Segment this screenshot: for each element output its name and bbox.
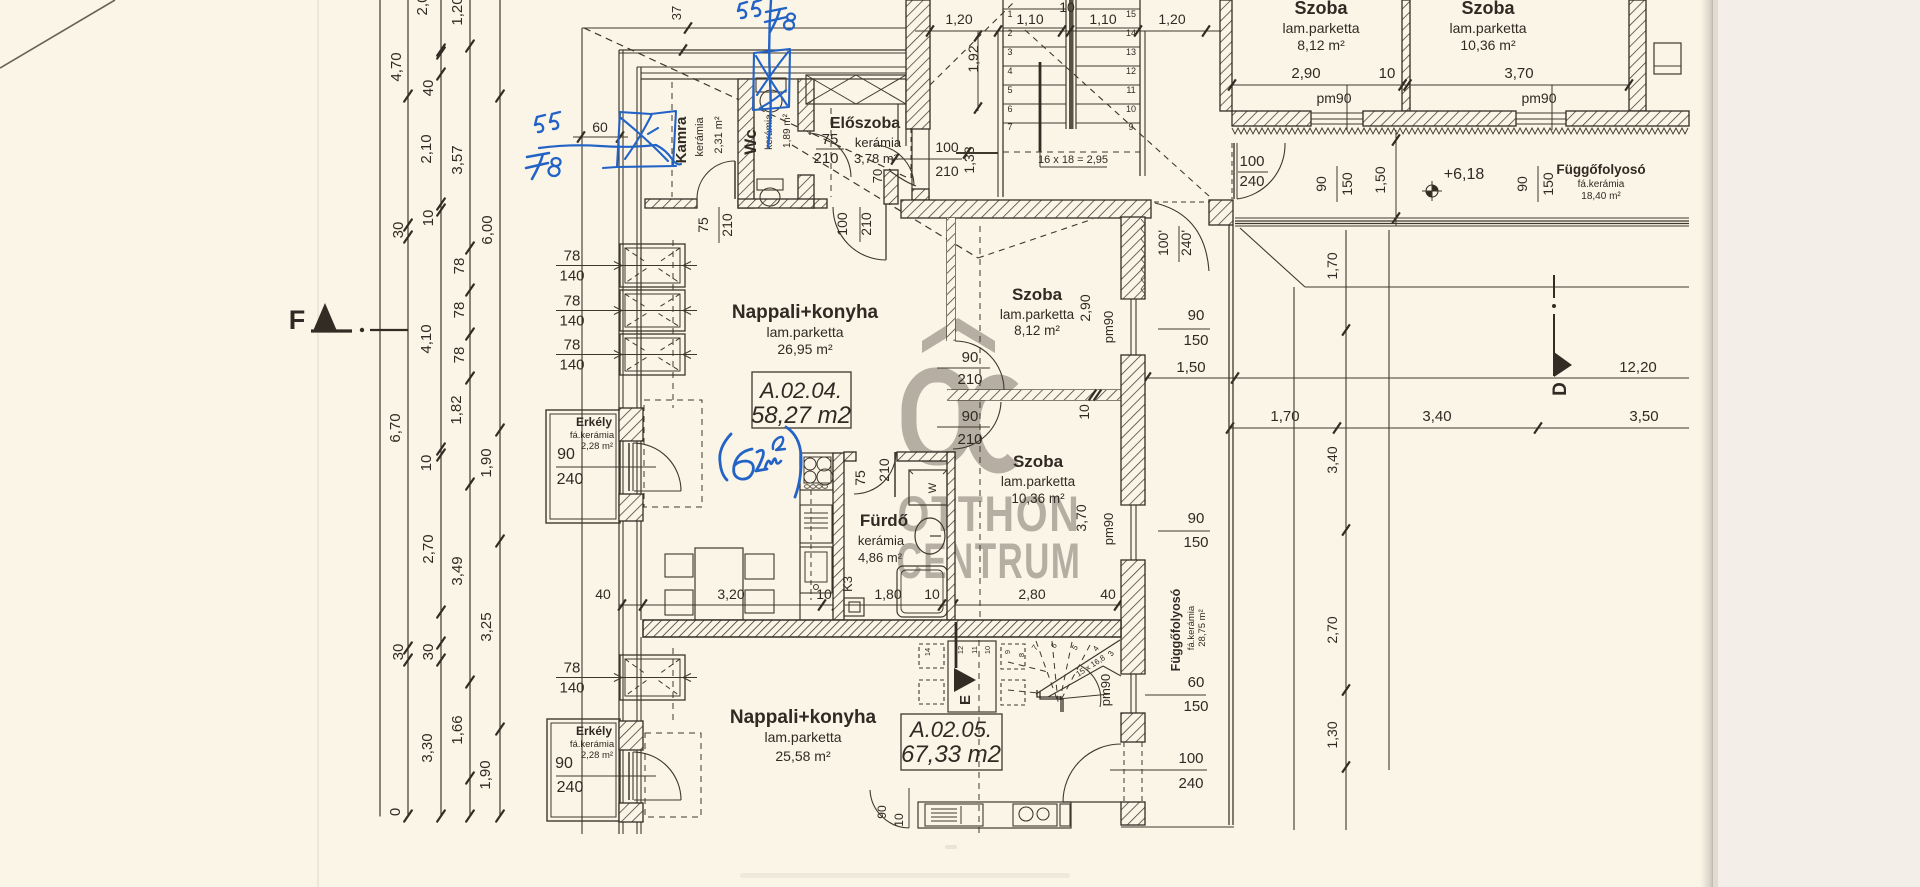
svg-text:90: 90 — [875, 805, 889, 819]
svg-text:lam.parketta: lam.parketta — [1001, 474, 1076, 489]
svg-text:fá.kerámia: fá.kerámia — [1578, 179, 1625, 190]
svg-text:2,70: 2,70 — [420, 534, 437, 563]
svg-text:78: 78 — [451, 347, 468, 364]
svg-text:Szoba: Szoba — [1294, 0, 1348, 18]
svg-text:2: 2 — [1007, 28, 1012, 38]
svg-text:3: 3 — [1007, 47, 1012, 57]
svg-text:140: 140 — [559, 680, 584, 697]
svg-text:2,70: 2,70 — [1324, 616, 1340, 643]
svg-text:30: 30 — [390, 222, 407, 239]
svg-text:3,70: 3,70 — [1504, 65, 1533, 82]
svg-text:Előszoba: Előszoba — [830, 115, 900, 132]
svg-text:78: 78 — [451, 302, 468, 319]
svg-text:100: 100 — [834, 212, 850, 236]
svg-text:lam.parketta: lam.parketta — [764, 729, 841, 745]
svg-text:4,10: 4,10 — [418, 324, 435, 353]
svg-text:90: 90 — [555, 755, 573, 772]
svg-text:pm90: pm90 — [1521, 90, 1556, 106]
svg-text:1,50: 1,50 — [1176, 359, 1205, 376]
svg-text:25,58 m²: 25,58 m² — [775, 748, 831, 764]
svg-text:1,30: 1,30 — [1324, 721, 1340, 748]
svg-text:90: 90 — [1188, 307, 1205, 324]
svg-text:3,20: 3,20 — [717, 586, 744, 602]
svg-text:90: 90 — [557, 446, 575, 463]
svg-text:10: 10 — [1059, 0, 1075, 15]
svg-text:40: 40 — [420, 80, 437, 97]
svg-text:30: 30 — [390, 644, 407, 661]
svg-text:9: 9 — [1003, 650, 1012, 654]
svg-text:100: 100 — [1239, 153, 1264, 170]
svg-text:11: 11 — [970, 646, 979, 654]
svg-text:210: 210 — [813, 150, 838, 167]
svg-text:10,36 m²: 10,36 m² — [1460, 37, 1516, 53]
svg-text:lam.parketta: lam.parketta — [1449, 20, 1526, 36]
svg-text:kerámia: kerámia — [858, 533, 905, 548]
svg-text:140: 140 — [559, 268, 584, 285]
svg-text:1,80: 1,80 — [874, 586, 901, 602]
svg-text:1,10: 1,10 — [1089, 11, 1116, 27]
svg-text:140: 140 — [559, 357, 584, 374]
svg-text:10,36 m²: 10,36 m² — [1011, 491, 1065, 506]
svg-text:fá.kerámia: fá.kerámia — [570, 430, 615, 441]
svg-text:Függőfolyosó: Függőfolyosó — [1556, 162, 1645, 177]
svg-text:12,20: 12,20 — [1619, 359, 1657, 376]
svg-text:Wc: Wc — [741, 129, 760, 155]
svg-text:90: 90 — [1514, 176, 1530, 192]
svg-text:40: 40 — [595, 586, 611, 602]
svg-text:W: W — [927, 482, 939, 493]
svg-text:210: 210 — [876, 458, 892, 482]
svg-text:kerámia: kerámia — [694, 117, 706, 157]
svg-text:3,57: 3,57 — [449, 145, 466, 174]
svg-text:1,90: 1,90 — [477, 760, 494, 789]
svg-text:1,90: 1,90 — [478, 448, 495, 477]
svg-text:7: 7 — [1007, 122, 1012, 132]
svg-text:75: 75 — [822, 131, 839, 148]
svg-text:Nappali+konyha: Nappali+konyha — [730, 707, 877, 728]
svg-text:3,40: 3,40 — [1422, 408, 1451, 425]
svg-text:100: 100 — [935, 139, 959, 155]
svg-text:58,27 m2: 58,27 m2 — [751, 402, 851, 429]
svg-text:A.02.04.: A.02.04. — [758, 378, 842, 403]
svg-text:16 x 18 = 2,95: 16 x 18 = 2,95 — [1038, 154, 1108, 166]
svg-text:4,86 m²: 4,86 m² — [858, 550, 903, 565]
svg-text:28,75 m²: 28,75 m² — [1197, 609, 1208, 647]
svg-text:2,90: 2,90 — [1291, 65, 1320, 82]
svg-text:30: 30 — [420, 644, 437, 661]
svg-text:240: 240 — [557, 471, 584, 488]
svg-text:13: 13 — [1126, 47, 1136, 57]
svg-text:5: 5 — [1007, 85, 1012, 95]
svg-text:210: 210 — [858, 212, 874, 236]
svg-text:90: 90 — [1313, 176, 1329, 192]
svg-text:4: 4 — [1007, 66, 1012, 76]
svg-text:Szoba: Szoba — [1461, 0, 1515, 18]
svg-text:150: 150 — [1183, 698, 1208, 715]
svg-text:12: 12 — [956, 646, 965, 654]
svg-text:210: 210 — [719, 213, 735, 237]
svg-text:1: 1 — [1007, 9, 1012, 19]
svg-text:2,0: 2,0 — [414, 0, 431, 15]
svg-text:1,50: 1,50 — [1372, 166, 1388, 193]
svg-text:75: 75 — [695, 217, 711, 233]
svg-text:E: E — [957, 695, 974, 705]
svg-text:75: 75 — [852, 470, 868, 486]
svg-text:240: 240 — [557, 779, 584, 796]
svg-text:pm90: pm90 — [1101, 311, 1116, 344]
svg-text:40: 40 — [1100, 586, 1116, 602]
svg-text:150: 150 — [1339, 172, 1355, 196]
svg-text:3,25: 3,25 — [478, 612, 495, 641]
svg-text:10: 10 — [1076, 404, 1092, 420]
svg-text:60: 60 — [1188, 674, 1205, 691]
svg-text:150: 150 — [1540, 172, 1556, 196]
svg-text:150: 150 — [1183, 534, 1208, 551]
svg-text:6,00: 6,00 — [479, 215, 496, 244]
svg-text:1,66: 1,66 — [449, 715, 466, 744]
svg-text:1,92: 1,92 — [965, 45, 981, 72]
svg-text:140: 140 — [559, 313, 584, 330]
svg-text:+6,18: +6,18 — [1444, 166, 1485, 183]
svg-text:lam.parketta: lam.parketta — [766, 324, 843, 340]
svg-text:1,10: 1,10 — [1016, 11, 1043, 27]
svg-text:14: 14 — [923, 648, 932, 656]
svg-text:fá.kerámia: fá.kerámia — [1186, 605, 1197, 650]
svg-text:pm90: pm90 — [1101, 513, 1116, 546]
svg-text:F: F — [289, 305, 306, 335]
svg-text:60: 60 — [592, 119, 608, 135]
svg-text:2,90: 2,90 — [1077, 294, 1093, 321]
svg-text:78: 78 — [564, 337, 581, 354]
svg-text:D: D — [1550, 382, 1571, 396]
svg-text:210: 210 — [957, 431, 982, 448]
svg-text:37: 37 — [669, 6, 684, 20]
svg-text:10: 10 — [1379, 65, 1396, 82]
svg-text:lam.parketta: lam.parketta — [1282, 20, 1359, 36]
svg-text:3,50: 3,50 — [1629, 408, 1658, 425]
svg-text:15: 15 — [1126, 9, 1136, 19]
svg-text:CENTRUM: CENTRUM — [897, 534, 1082, 590]
svg-text:K3: K3 — [840, 576, 855, 592]
svg-text:Fürdő: Fürdő — [860, 511, 908, 530]
svg-text:Nappali+konyha: Nappali+konyha — [732, 302, 879, 323]
svg-text:6: 6 — [1007, 104, 1012, 114]
svg-text:1,20: 1,20 — [449, 0, 466, 26]
svg-text:3,30: 3,30 — [419, 733, 436, 762]
svg-text:78: 78 — [564, 660, 581, 677]
svg-text:2,28 m²: 2,28 m² — [581, 441, 613, 452]
svg-text:90: 90 — [1188, 510, 1205, 527]
svg-text:10: 10 — [418, 455, 435, 472]
svg-text:kerámia: kerámia — [855, 135, 902, 150]
svg-text:78: 78 — [564, 293, 581, 310]
svg-text:Függőfolyosó: Függőfolyosó — [1169, 588, 1183, 671]
svg-text:fá.kerámia: fá.kerámia — [570, 739, 615, 750]
svg-text:0: 0 — [387, 808, 404, 816]
svg-text:90: 90 — [962, 408, 979, 425]
svg-text:240': 240' — [1178, 230, 1194, 256]
svg-text:1,20: 1,20 — [1158, 11, 1185, 27]
svg-text:8,12 m²: 8,12 m² — [1297, 37, 1345, 53]
svg-text:10: 10 — [1126, 104, 1136, 114]
svg-text:Szoba: Szoba — [1013, 452, 1064, 471]
svg-text:2,80: 2,80 — [1018, 586, 1045, 602]
svg-text:100: 100 — [1178, 750, 1203, 767]
svg-text:18,40 m²: 18,40 m² — [1581, 191, 1621, 202]
svg-text:78: 78 — [564, 248, 581, 265]
svg-text:10: 10 — [892, 813, 906, 827]
svg-text:67,33 m2: 67,33 m2 — [901, 741, 1001, 768]
svg-text:Szoba: Szoba — [1012, 285, 1063, 304]
svg-text:3,70: 3,70 — [1073, 504, 1089, 531]
svg-text:240: 240 — [1178, 775, 1203, 792]
svg-text:8,12 m²: 8,12 m² — [1014, 323, 1060, 338]
svg-text:70: 70 — [870, 169, 885, 183]
svg-text:2,10: 2,10 — [418, 134, 435, 163]
svg-text:1,70: 1,70 — [1270, 408, 1299, 425]
svg-text:3,40: 3,40 — [1324, 446, 1340, 473]
svg-text:100': 100' — [1155, 230, 1171, 256]
svg-text:2,31 m²: 2,31 m² — [713, 116, 725, 154]
svg-text:210: 210 — [957, 371, 982, 388]
svg-text:240: 240 — [1239, 173, 1264, 190]
svg-text:10: 10 — [420, 210, 437, 227]
svg-text:90: 90 — [962, 349, 979, 366]
svg-text:6,70: 6,70 — [387, 413, 404, 442]
svg-text:10: 10 — [983, 646, 992, 654]
svg-text:10: 10 — [924, 586, 940, 602]
svg-text:11: 11 — [1126, 85, 1135, 95]
svg-text:210: 210 — [935, 163, 959, 179]
svg-text:3,49: 3,49 — [449, 556, 466, 585]
svg-text:26,95 m²: 26,95 m² — [777, 341, 833, 357]
svg-text:Erkély: Erkély — [576, 724, 612, 738]
svg-text:1,82: 1,82 — [448, 395, 465, 424]
svg-text:150: 150 — [1183, 332, 1208, 349]
svg-text:lam.parketta: lam.parketta — [1000, 307, 1075, 322]
svg-text:12: 12 — [1126, 66, 1136, 76]
svg-text:1,70: 1,70 — [1324, 252, 1340, 279]
svg-text:1,89 m²: 1,89 m² — [782, 113, 793, 148]
svg-text:8: 8 — [1017, 653, 1026, 657]
svg-text:4,70: 4,70 — [388, 52, 405, 81]
svg-text:1,20: 1,20 — [945, 11, 972, 27]
svg-text:pm90: pm90 — [1316, 90, 1351, 106]
svg-text:78: 78 — [451, 258, 468, 275]
svg-text:2,28 m²: 2,28 m² — [581, 750, 613, 761]
svg-text:Erkély: Erkély — [576, 415, 612, 429]
